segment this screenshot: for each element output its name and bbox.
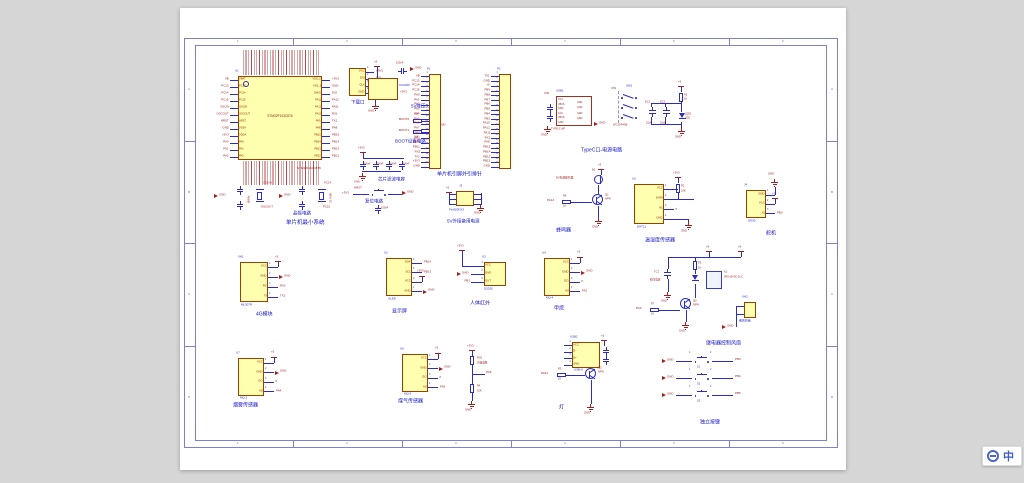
screen: 112233445566AABBCCDDSTM32F103C8T6U1VBATV… bbox=[0, 0, 1024, 483]
wire bbox=[712, 361, 733, 362]
push-button[interactable] bbox=[692, 356, 712, 366]
push-button[interactable] bbox=[692, 373, 712, 383]
net-label: 2 bbox=[710, 369, 711, 371]
net-label: PB3 bbox=[735, 358, 741, 361]
wire bbox=[676, 361, 692, 362]
schematic-sheet: 112233445566AABBCCDDSTM32F103C8T6U1VBATV… bbox=[0, 0, 1024, 483]
push-button[interactable] bbox=[692, 390, 712, 400]
language-globe-icon[interactable] bbox=[987, 450, 999, 462]
circuit-caption: 独立按键 bbox=[700, 420, 720, 425]
net-label: PB4 bbox=[735, 375, 741, 378]
wire bbox=[676, 378, 692, 379]
designator: S2 bbox=[697, 383, 700, 386]
designator: S3 bbox=[697, 400, 700, 403]
ime-indicator[interactable]: 中 bbox=[982, 446, 1022, 466]
gnd-label: GND bbox=[667, 393, 673, 396]
net-label: 2 bbox=[710, 386, 711, 388]
wire bbox=[712, 395, 733, 396]
ime-language-label: 中 bbox=[1003, 448, 1014, 464]
net-label: 1 bbox=[689, 352, 690, 354]
net-label: 1 bbox=[689, 386, 690, 388]
gnd-label: GND bbox=[667, 359, 673, 362]
net-label: PB5 bbox=[735, 392, 741, 395]
wire bbox=[712, 378, 733, 379]
wire bbox=[676, 395, 692, 396]
designator: S1 bbox=[697, 366, 700, 369]
gnd-label: GND bbox=[667, 376, 673, 379]
net-label: 1 bbox=[689, 369, 690, 371]
net-label: 2 bbox=[710, 352, 711, 354]
block-keys: GND12S1PB3GND12S2PB4GND12S3PB5独立按键 bbox=[0, 0, 1024, 483]
